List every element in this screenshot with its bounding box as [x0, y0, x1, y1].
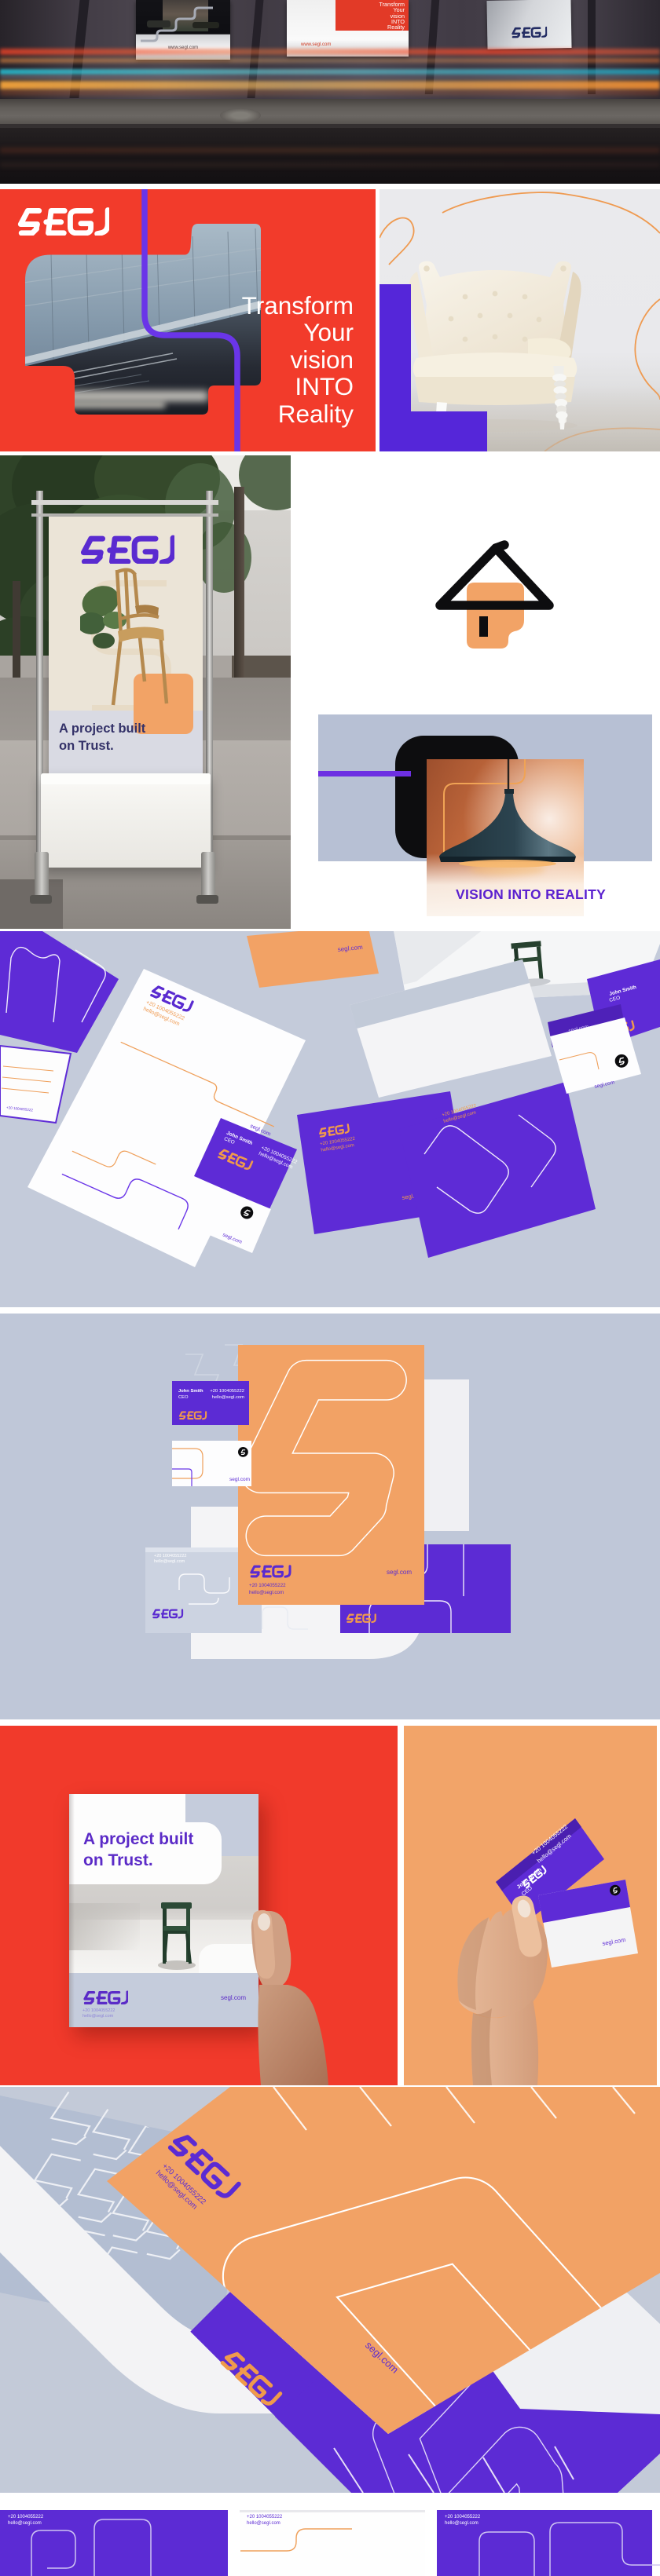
svg-text:+20 1004055222: +20 1004055222	[8, 2515, 44, 2519]
svg-text:hello@segl.com: hello@segl.com	[445, 2521, 478, 2526]
svg-text:John Smith: John Smith	[178, 1389, 203, 1394]
svg-text:hello@segl.com: hello@segl.com	[247, 2521, 280, 2526]
svg-text:hello@segl.com: hello@segl.com	[249, 1590, 284, 1595]
svg-text:segl.com: segl.com	[387, 1569, 412, 1576]
svg-text:+20 1004055222: +20 1004055222	[247, 2515, 283, 2519]
svg-text:hello@segl.com: hello@segl.com	[154, 1559, 185, 1564]
svg-text:+20 1004055222: +20 1004055222	[249, 1583, 286, 1588]
svg-text:hello@segl.com: hello@segl.com	[212, 1395, 244, 1400]
svg-text:segl.com: segl.com	[229, 1477, 250, 1482]
svg-text:+20 1004055222: +20 1004055222	[210, 1389, 244, 1394]
svg-text:+20 1004055222: +20 1004055222	[445, 2515, 481, 2519]
svg-text:hello@segl.com: hello@segl.com	[8, 2521, 42, 2526]
svg-text:CEO: CEO	[178, 1395, 189, 1400]
svg-text:+20 1004055222: +20 1004055222	[154, 1554, 186, 1558]
